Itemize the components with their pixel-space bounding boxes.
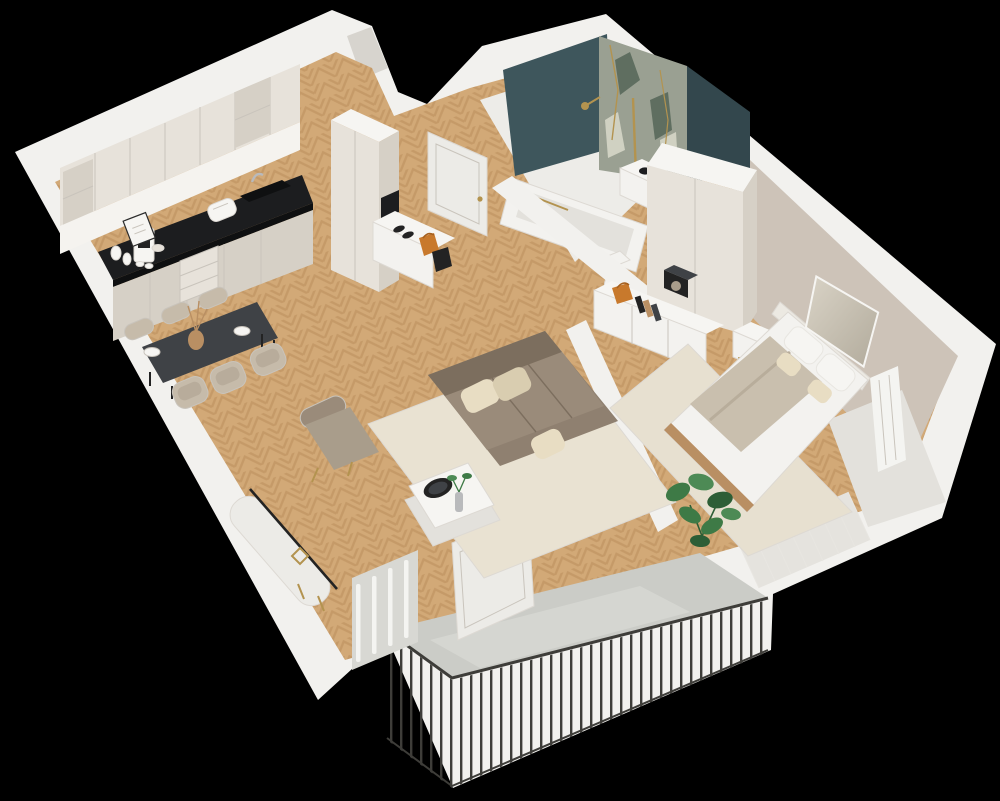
render-canvas: 3D isometric cutaway floor plan of a one…	[0, 0, 1000, 801]
curtain-fold	[396, 564, 401, 642]
wardrobe-side	[743, 170, 757, 334]
floor-plan-render: 3D isometric cutaway floor plan of a one…	[0, 0, 1000, 801]
storage-box-dial	[671, 281, 681, 291]
plate	[144, 348, 160, 357]
vase-body	[188, 330, 204, 350]
glass-vase	[455, 492, 463, 512]
curtain-fold	[372, 576, 377, 654]
curtain-fold	[380, 572, 385, 650]
plate	[234, 327, 250, 336]
canister	[111, 246, 121, 260]
bowl	[152, 245, 164, 252]
curtain-fold	[404, 560, 409, 638]
curtain-fold	[364, 580, 369, 658]
curtain-fold	[356, 584, 361, 662]
canister	[123, 253, 131, 265]
door-handle	[477, 196, 482, 201]
curtain-fold	[388, 568, 393, 646]
